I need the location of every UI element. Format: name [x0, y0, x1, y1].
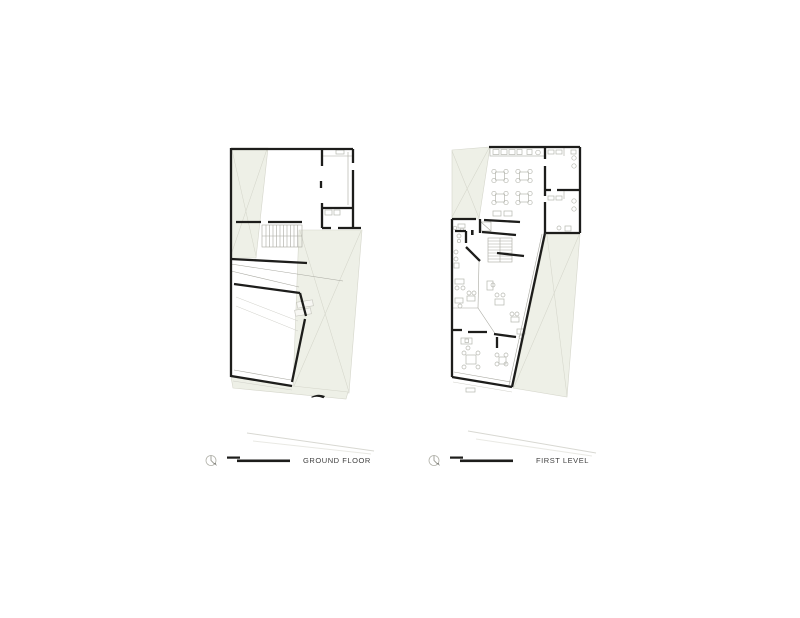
- north-arrow-icon: [203, 452, 219, 468]
- ground-floor-stairs: [262, 225, 302, 247]
- plan-label-first-level: FIRST LEVEL: [536, 456, 589, 465]
- ground-floor-plan: [231, 148, 374, 454]
- ground-floor-street-lines: [247, 433, 374, 454]
- floor-plans-canvas: [0, 0, 800, 618]
- first-level-stairs: [488, 238, 512, 262]
- first-level-site: [452, 147, 580, 397]
- first-level-door-tick: [471, 230, 474, 235]
- scale-bar: [450, 455, 516, 465]
- drawing-sheet: GROUND FLOOR FIRST LEVEL: [0, 0, 800, 618]
- ground-floor-fixtures: [325, 150, 344, 215]
- ground-floor-legend: GROUND FLOOR: [203, 452, 371, 468]
- plan-label-ground-floor: GROUND FLOOR: [303, 456, 371, 465]
- first-level-dining-furniture: [490, 148, 545, 216]
- first-level-plan: [452, 147, 596, 456]
- scale-bar: [227, 455, 293, 465]
- north-arrow-icon: [426, 452, 442, 468]
- first-level-legend: FIRST LEVEL: [426, 452, 589, 468]
